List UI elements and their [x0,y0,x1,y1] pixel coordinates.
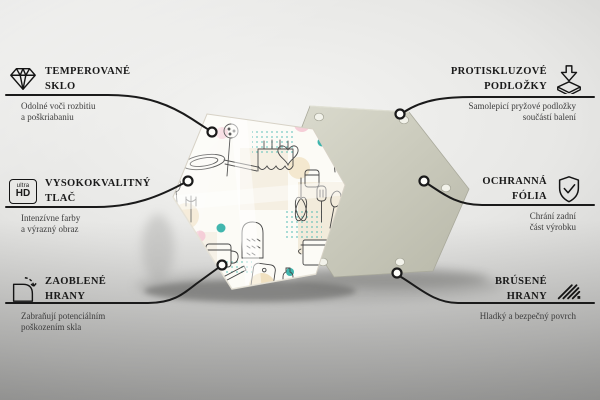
feature-description: Samolepicí pryžové podložky součástí bal… [432,101,592,122]
feature-title: VYSOKOKVALITNÝ TLAČ [45,176,151,206]
feature-title: PROTISKLUZOVÉ PODLOŽKY [451,64,547,94]
feature-anti-slip-pads: PROTISKLUZOVÉ PODLOŽKY Samolepicí pryžov… [432,62,592,122]
feature-description: Odolné voči rozbitiu a poškriabaniu [8,101,168,122]
feature-title: OCHRANNÁ FÓLIA [482,174,547,204]
feature-title-line: TEMPEROVANÉ [45,64,130,79]
feature-desc-line: část výrobku [432,222,576,233]
feature-desc-line: a výrazný obraz [21,224,168,235]
feature-title-line: PROTISKLUZOVÉ [451,64,547,79]
feature-desc-line: a poškriabaniu [21,112,168,123]
feature-title-line: HRANY [495,289,547,304]
feature-protective-film: OCHRANNÁ FÓLIA Chrání zadní část výrobku [432,172,592,232]
feature-desc-line: Intenzívne farby [21,213,168,224]
feature-desc-line: Hladký a bezpečný povrch [432,311,576,322]
diamond-icon [8,64,38,94]
feature-polished-edges: BRÚSENÉ HRANY Hladký a bezpečný povrch [432,272,592,322]
feature-hd-print: ultra HD VYSOKOKVALITNÝ TLAČ Intenzívne … [8,174,168,234]
feature-title-line: HRANY [45,289,106,304]
feature-title-line: VYSOKOKVALITNÝ [45,176,151,191]
rounded-corner-icon [8,274,38,304]
feature-desc-line: Odolné voči rozbitiu [21,101,168,112]
feature-title-line: OCHRANNÁ [482,174,547,189]
feature-title-line: SKLO [45,79,130,94]
feature-title: BRÚSENÉ HRANY [495,274,547,304]
feature-rounded-edges: ZAOBLENÉ HRANY Zabraňují potenciálním po… [8,272,168,332]
ultra-hd-icon-text-big: HD [16,189,30,199]
feature-title-line: PODLOŽKY [451,79,547,94]
feature-title-line: FÓLIA [482,189,547,204]
shield-check-icon [554,174,584,204]
feature-title: ZAOBLENÉ HRANY [45,274,106,304]
ultra-hd-icon: ultra HD [8,176,38,206]
polished-edge-icon [554,274,584,304]
feature-tempered-glass: TEMPEROVANÉ SKLO Odolné voči rozbitiu a … [8,62,168,122]
feature-title-line: ZAOBLENÉ [45,274,106,289]
feature-description: Intenzívne farby a výrazný obraz [8,213,168,234]
anti-slip-pad-icon [554,64,584,94]
feature-title: TEMPEROVANÉ SKLO [45,64,130,94]
feature-desc-line: Zabraňují potenciálním [21,311,168,322]
feature-description: Chrání zadní část výrobku [432,211,592,232]
feature-title-line: TLAČ [45,191,151,206]
product-infographic: TEMPEROVANÉ SKLO Odolné voči rozbitiu a … [0,0,600,400]
feature-desc-line: poškozením skla [21,322,168,333]
feature-description: Zabraňují potenciálním poškozením skla [8,311,168,332]
feature-title-line: BRÚSENÉ [495,274,547,289]
feature-description: Hladký a bezpečný povrch [432,311,592,322]
feature-desc-line: součástí balení [432,112,576,123]
feature-desc-line: Samolepicí pryžové podložky [432,101,576,112]
feature-desc-line: Chrání zadní [432,211,576,222]
